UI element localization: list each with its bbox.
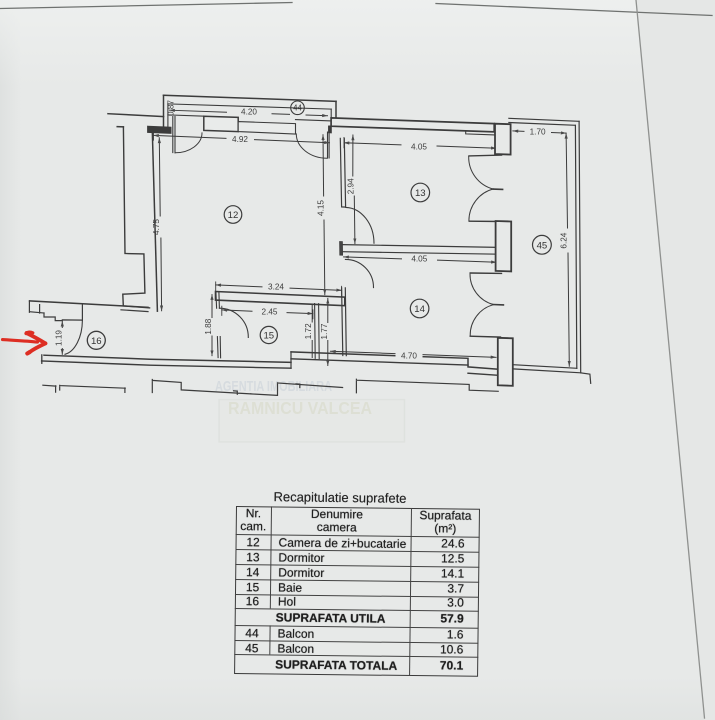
svg-text:0.87: 0.87 — [167, 100, 176, 116]
svg-text:3.24: 3.24 — [268, 282, 284, 291]
svg-text:1.88: 1.88 — [204, 318, 213, 334]
svg-text:1.19: 1.19 — [55, 330, 64, 346]
svg-text:RAMNICU VALCEA: RAMNICU VALCEA — [228, 398, 372, 418]
svg-text:6.24: 6.24 — [560, 232, 569, 248]
svg-text:1.72: 1.72 — [304, 323, 313, 339]
svg-text:44: 44 — [293, 104, 302, 113]
svg-text:4.75: 4.75 — [152, 219, 161, 235]
svg-text:4.70: 4.70 — [401, 352, 417, 361]
svg-text:15: 15 — [263, 331, 274, 342]
svg-text:4.05: 4.05 — [411, 254, 427, 263]
svg-text:4.05: 4.05 — [411, 142, 427, 151]
svg-text:1.70: 1.70 — [530, 127, 546, 136]
svg-text:4.20: 4.20 — [241, 108, 257, 117]
svg-text:2.94: 2.94 — [347, 178, 356, 194]
svg-text:16: 16 — [91, 336, 102, 347]
svg-text:12: 12 — [228, 210, 239, 221]
svg-text:13: 13 — [415, 188, 426, 199]
svg-text:1.77: 1.77 — [320, 323, 329, 339]
svg-text:2.45: 2.45 — [262, 308, 278, 317]
svg-text:4.15: 4.15 — [317, 200, 326, 216]
svg-text:4.92: 4.92 — [232, 135, 248, 144]
svg-text:45: 45 — [537, 241, 548, 252]
svg-text:14: 14 — [414, 304, 425, 315]
